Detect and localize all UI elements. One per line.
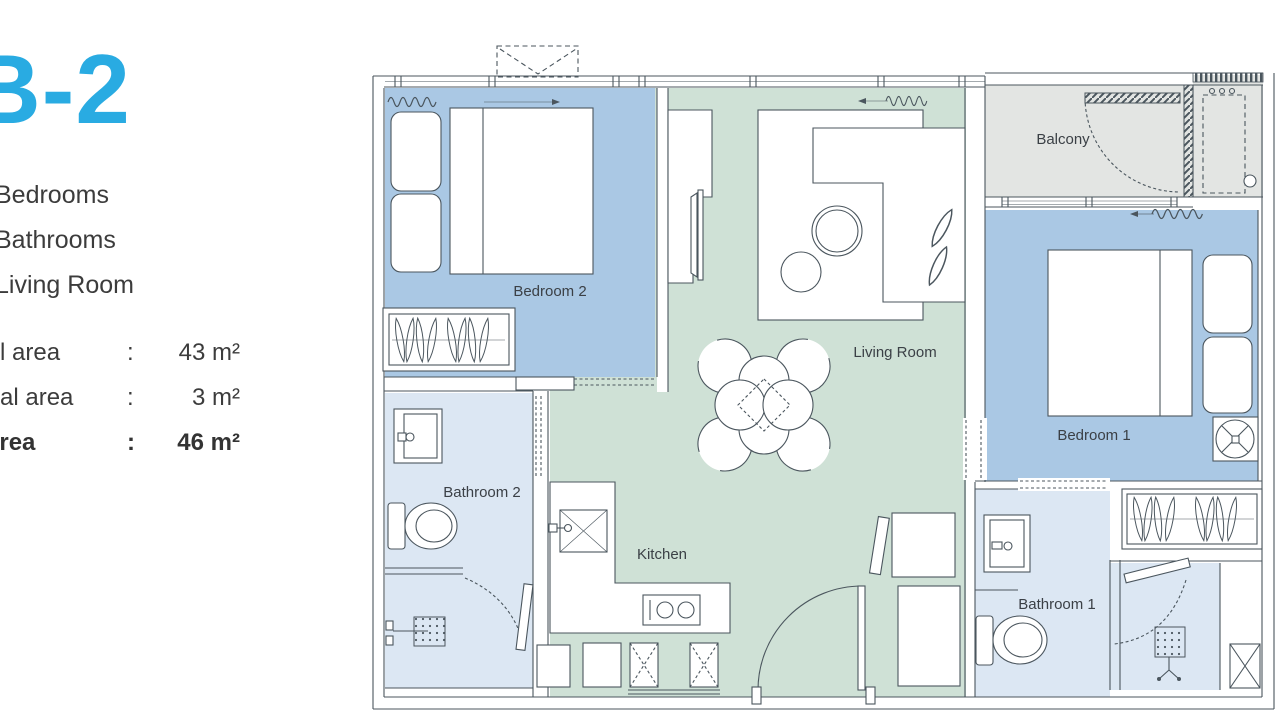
area-colon: : bbox=[127, 429, 135, 457]
door-opening-bathroom2 bbox=[536, 396, 541, 478]
hatched-wall bbox=[1184, 85, 1193, 197]
label-balcony: Balcony bbox=[1036, 131, 1090, 148]
bedroom-wall-strip bbox=[657, 88, 668, 392]
bedroom2-bed bbox=[391, 108, 593, 274]
ottoman bbox=[781, 252, 821, 292]
area-colon: : bbox=[127, 384, 134, 412]
ac-outdoor-unit bbox=[497, 46, 578, 77]
area-value: 3 m² bbox=[140, 384, 240, 412]
floorplan-page: B-2 Bedrooms Bathrooms Living Room l are… bbox=[0, 0, 1280, 720]
label-bedroom2: Bedroom 2 bbox=[513, 283, 586, 300]
unit-title: B-2 bbox=[0, 40, 131, 138]
bedroom1-bed bbox=[1048, 250, 1252, 416]
area-value: 43 m² bbox=[140, 339, 240, 367]
bathroom2-toilet bbox=[388, 503, 457, 549]
bedroom2-wardrobe bbox=[383, 308, 515, 371]
bathroom2-sink bbox=[394, 409, 442, 463]
sliding-door-bathroom1 bbox=[1018, 478, 1110, 491]
area-value: 46 m² bbox=[140, 429, 240, 457]
bedroom1-wardrobe bbox=[1122, 489, 1262, 549]
area-label: l area bbox=[0, 339, 60, 367]
ceiling-fan-symbol bbox=[1213, 417, 1258, 461]
label-bedroom1: Bedroom 1 bbox=[1057, 427, 1130, 444]
feature-bedrooms: Bedrooms bbox=[0, 181, 109, 210]
label-bathroom1: Bathroom 1 bbox=[1018, 596, 1096, 613]
bathroom1-toilet bbox=[976, 616, 1047, 665]
feature-bathrooms: Bathrooms bbox=[0, 226, 116, 255]
door-opening-bedroom1 bbox=[963, 418, 987, 480]
area-colon: : bbox=[127, 339, 134, 367]
area-label: area bbox=[0, 429, 35, 457]
feature-livingroom: Living Room bbox=[0, 271, 134, 300]
area-label: al area bbox=[0, 384, 73, 412]
side-table bbox=[812, 206, 862, 256]
label-kitchen: Kitchen bbox=[637, 546, 687, 563]
label-bathroom2: Bathroom 2 bbox=[443, 484, 521, 501]
label-living-room: Living Room bbox=[853, 344, 936, 361]
tick-band bbox=[1193, 73, 1263, 82]
service-shaft bbox=[1230, 644, 1260, 688]
floorplan-drawing: Bedroom 2 Living Room Balcony Bedroom 1 … bbox=[360, 20, 1280, 720]
